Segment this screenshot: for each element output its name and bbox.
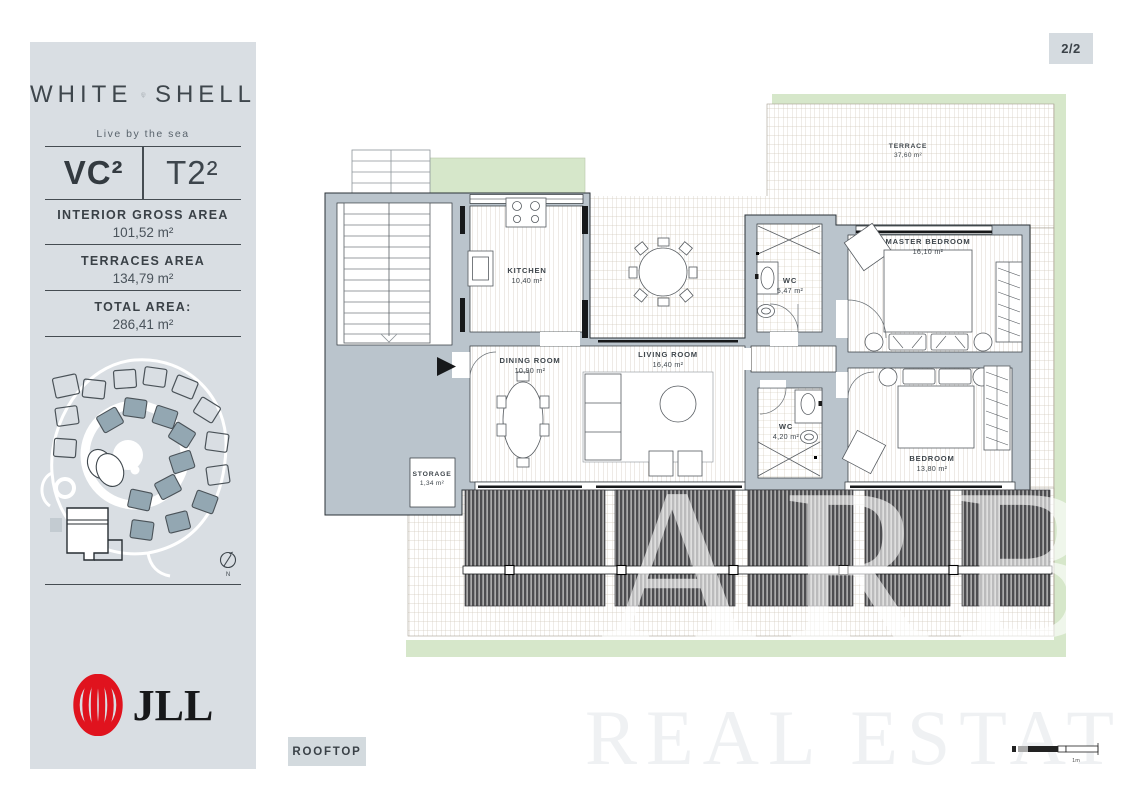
- total-area-label: TOTAL AREA:: [45, 300, 241, 314]
- terrace-area: 37,60 m²: [894, 152, 923, 159]
- brand-word-left: WHITE: [30, 81, 132, 109]
- sidebar-rule: [45, 584, 241, 585]
- total-area-block: TOTAL AREA: 286,41 m²: [45, 291, 241, 337]
- courtyard-table: [629, 238, 697, 306]
- brochure-page: WHITE BEACH VILLAS SHELL Live by the sea…: [0, 0, 1123, 794]
- terrace-label: TERRACE: [889, 143, 927, 150]
- jll-mark-icon: [73, 674, 123, 736]
- living-furniture: [583, 372, 713, 476]
- scale-bar: 1m: [1012, 740, 1108, 766]
- jll-logo: JLL: [30, 674, 256, 736]
- pergola-deck: [463, 490, 1052, 606]
- unit-code: VC²: [45, 154, 142, 192]
- page-number-badge: 2/2: [1049, 33, 1093, 64]
- sidebar-panel: WHITE BEACH VILLAS SHELL Live by the sea…: [30, 42, 256, 769]
- wc1-area: 5,47 m²: [777, 286, 804, 295]
- brand-logo: WHITE BEACH VILLAS SHELL: [30, 58, 256, 132]
- jll-wordmark: JLL: [133, 680, 214, 731]
- compass-label: N: [226, 572, 230, 578]
- wc1-label: WC: [783, 276, 797, 285]
- unit-code-block: VC² T2²: [45, 146, 241, 200]
- terraces-area-value: 134,79 m²: [45, 271, 241, 286]
- interior-area-block: INTERIOR GROSS AREA 101,52 m²: [45, 199, 241, 245]
- living-label: LIVING ROOM: [638, 350, 698, 359]
- terraces-area-block: TERRACES AREA 134,79 m²: [45, 245, 241, 291]
- terraces-area-label: TERRACES AREA: [45, 254, 241, 268]
- floor-plan: TERRACE 37,60 m² KITCHEN 10,40 m² DINING…: [300, 80, 1120, 692]
- dining-label: DINING ROOM: [499, 356, 560, 365]
- brand-tagline: Live by the sea: [30, 128, 256, 140]
- master-label: MASTER BEDROOM: [885, 237, 970, 246]
- stove-icon: [506, 198, 546, 227]
- scale-label: 1m: [1072, 758, 1080, 764]
- storage-label: STORAGE: [412, 471, 451, 478]
- compass-icon: [221, 552, 236, 568]
- stairs: [344, 203, 430, 343]
- storage-area: 1,34 m²: [420, 480, 445, 487]
- shell-emblem-icon: BEACH VILLAS: [141, 58, 146, 132]
- exterior-stairs: [352, 150, 430, 193]
- kitchen-area: 10,40 m²: [512, 276, 543, 285]
- bedroom-area: 13,80 m²: [917, 464, 948, 473]
- watermark-small: REAL ESTATE: [585, 693, 1120, 783]
- site-plan-map: N: [38, 348, 248, 580]
- master-area: 16,10 m²: [913, 247, 944, 256]
- brand-word-right: SHELL: [155, 81, 256, 109]
- unit-type: T2²: [144, 154, 241, 192]
- floor-name-label: ROOFTOP: [288, 737, 366, 766]
- total-area-value: 286,41 m²: [45, 317, 241, 332]
- kitchen-sink-icon: [468, 251, 493, 286]
- interior-area-label: INTERIOR GROSS AREA: [45, 208, 241, 222]
- wc2-label: WC: [779, 422, 793, 431]
- dining-area: 10,90 m²: [515, 366, 546, 375]
- bedroom-label: BEDROOM: [909, 454, 954, 463]
- kitchen-label: KITCHEN: [507, 266, 546, 275]
- living-area: 16,40 m²: [653, 360, 684, 369]
- interior-area-value: 101,52 m²: [45, 225, 241, 240]
- wc2-area: 4,20 m²: [773, 432, 800, 441]
